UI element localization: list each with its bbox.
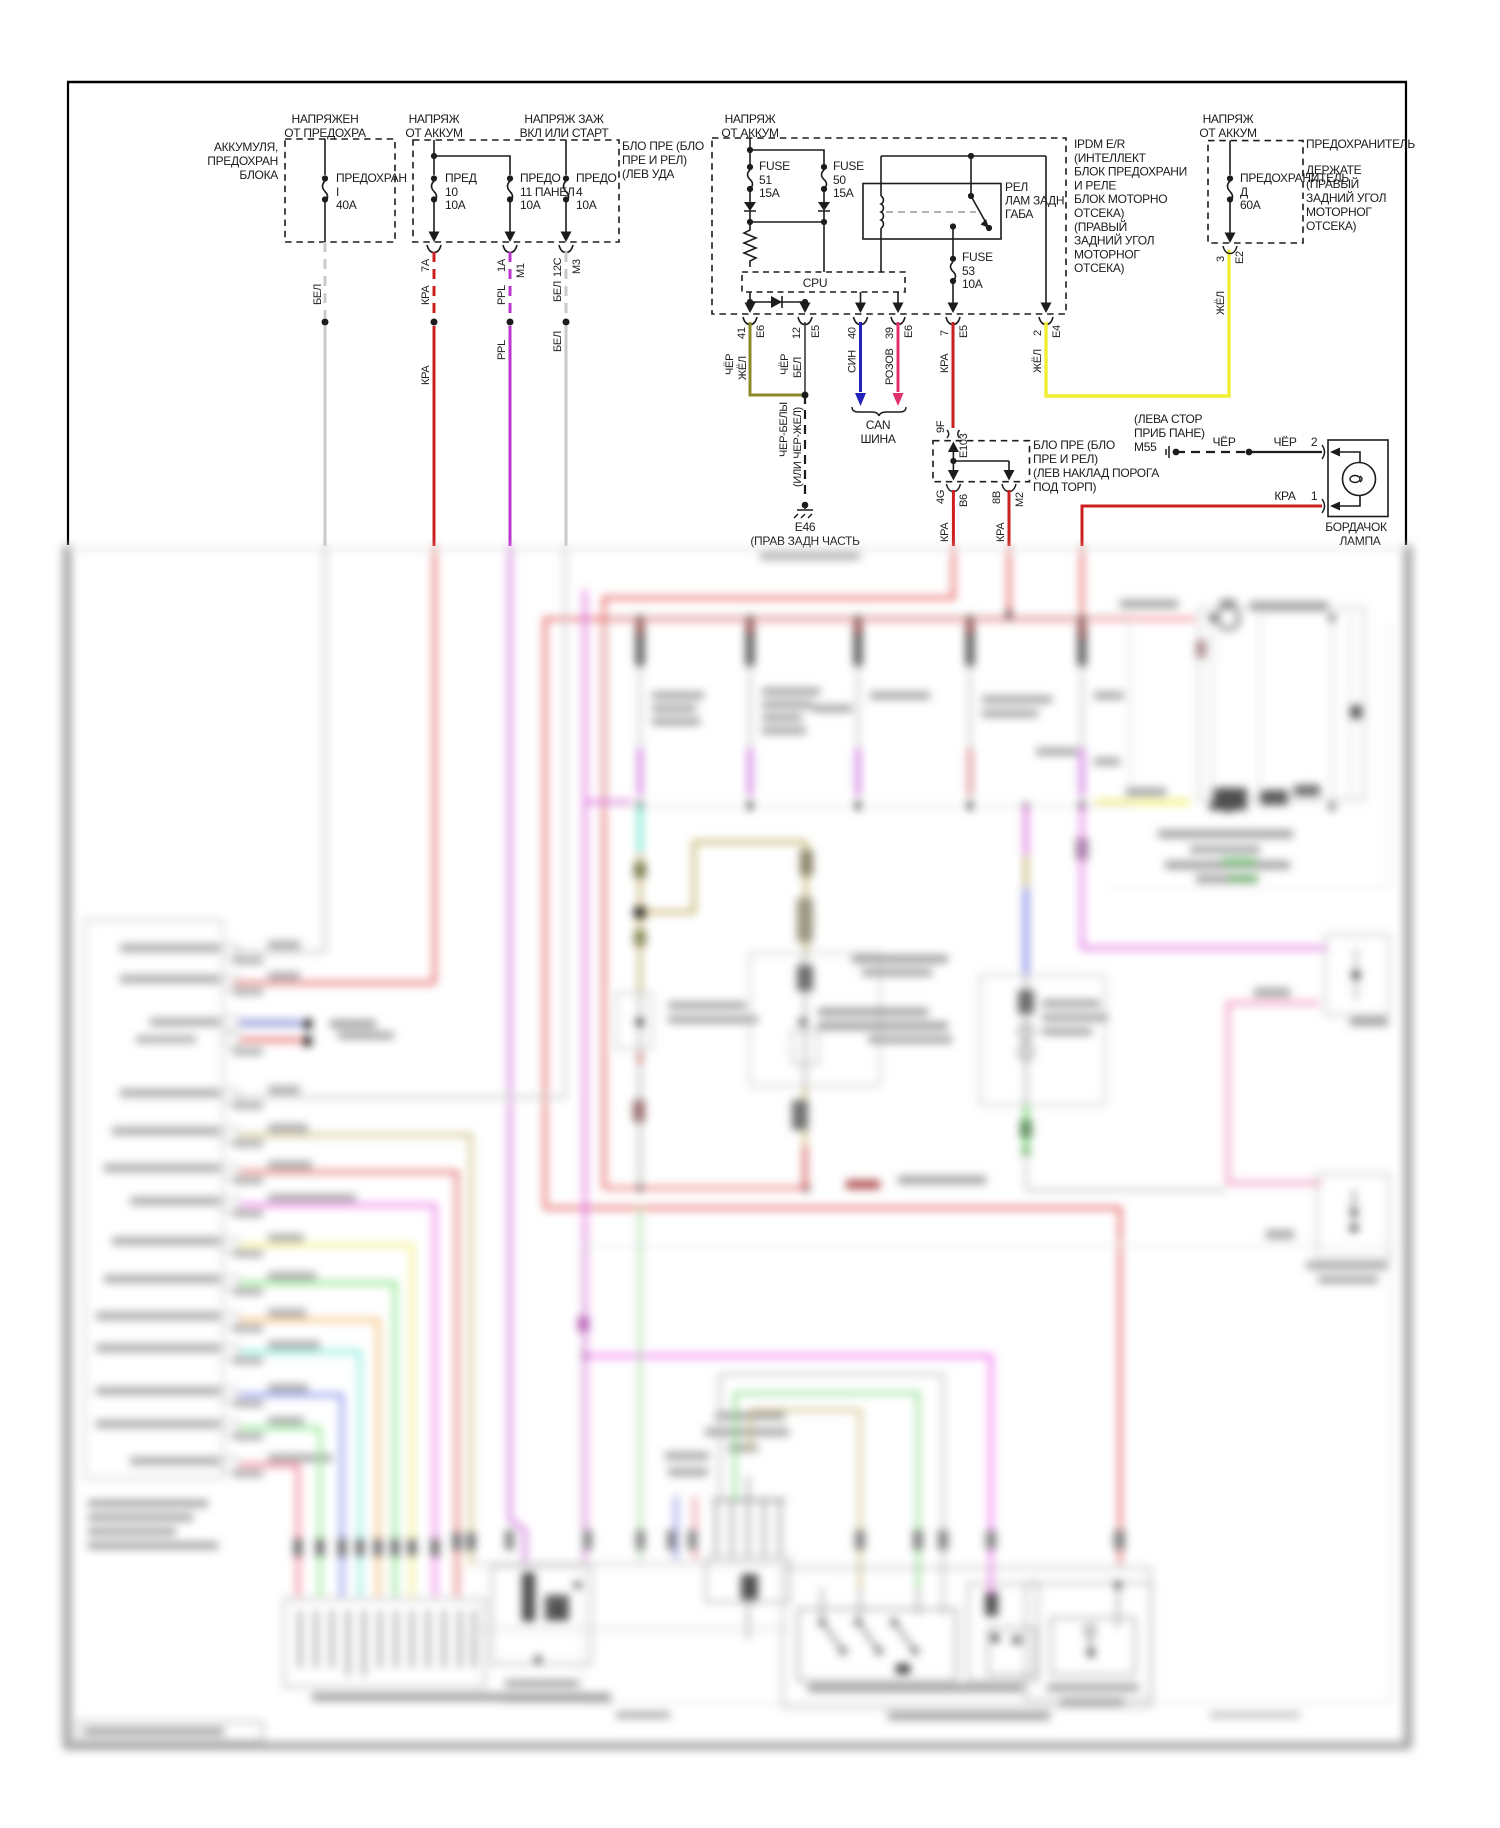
svg-text:ПРЕДОХРАНИТЕЛЬ: ПРЕДОХРАНИТЕЛЬ [1240, 171, 1349, 185]
svg-text:ПРЕДО: ПРЕДО [520, 171, 561, 185]
svg-text:ЛАМ ЗАДН: ЛАМ ЗАДН [1005, 194, 1064, 208]
svg-text:ЧЁР: ЧЁР [779, 354, 791, 375]
svg-text:(ЛЕВ УДА: (ЛЕВ УДА [622, 167, 674, 181]
svg-text:РОЗОВ: РОЗОВ [884, 348, 896, 385]
svg-text:53: 53 [962, 264, 975, 278]
svg-text:PPL: PPL [496, 285, 508, 305]
svg-text:Д: Д [1240, 185, 1248, 199]
svg-text:ЖЁЛ: ЖЁЛ [1215, 291, 1227, 315]
svg-text:БЕЛ: БЕЛ [552, 281, 564, 302]
svg-text:I: I [336, 185, 339, 199]
svg-text:ПРЕДОХРАН: ПРЕДОХРАН [207, 154, 278, 168]
svg-text:60A: 60A [1240, 198, 1261, 212]
svg-text:2: 2 [1311, 435, 1318, 449]
svg-text:(ИЛИ ЧЕР-ЖЕЛ): (ИЛИ ЧЕР-ЖЕЛ) [792, 407, 804, 487]
svg-text:БЕЛ: БЕЛ [792, 357, 804, 378]
svg-text:ГАБА: ГАБА [1005, 207, 1033, 221]
svg-text:FUSE: FUSE [962, 250, 993, 264]
svg-text:7A: 7A [420, 258, 432, 272]
svg-text:9F: 9F [935, 420, 947, 433]
svg-text:E6: E6 [903, 325, 915, 338]
svg-text:E103: E103 [958, 433, 970, 458]
svg-text:40A: 40A [336, 198, 357, 212]
svg-text:CAN: CAN [866, 418, 890, 432]
svg-text:М55: М55 [1134, 440, 1157, 454]
svg-text:E5: E5 [810, 325, 822, 338]
svg-text:15A: 15A [833, 186, 854, 200]
svg-text:ПРЕДО: ПРЕДО [576, 171, 617, 185]
svg-text:БЕЛ: БЕЛ [552, 331, 564, 352]
svg-text:ЖЁЛ: ЖЁЛ [1032, 349, 1044, 373]
svg-text:4G: 4G [935, 490, 947, 504]
svg-text:ОТ АККУМ: ОТ АККУМ [405, 126, 463, 140]
svg-text:БЛОК ПРЕДОХРАНИ: БЛОК ПРЕДОХРАНИ [1074, 165, 1187, 179]
svg-text:ЗАДНИЙ УГОЛ: ЗАДНИЙ УГОЛ [1074, 233, 1154, 248]
svg-text:ОТСЕКА): ОТСЕКА) [1074, 206, 1125, 220]
svg-text:FUSE: FUSE [833, 159, 864, 173]
svg-text:И РЕЛЕ: И РЕЛЕ [1074, 178, 1116, 192]
svg-text:4: 4 [576, 185, 583, 199]
svg-text:ПРЕДОХРАН: ПРЕДОХРАН [336, 171, 407, 185]
svg-text:КРА: КРА [939, 353, 951, 373]
svg-text:E6: E6 [755, 325, 767, 338]
svg-text:ОТСЕКА): ОТСЕКА) [1306, 219, 1357, 233]
svg-text:НАПРЯЖ: НАПРЯЖ [1203, 112, 1254, 126]
svg-text:КРА: КРА [420, 365, 432, 385]
svg-text:E4: E4 [1051, 325, 1063, 338]
svg-text:МОТОРНОГ: МОТОРНОГ [1306, 205, 1372, 219]
svg-text:39: 39 [884, 327, 896, 339]
svg-text:PPL: PPL [496, 340, 508, 360]
svg-text:ЗАДНИЙ УГОЛ: ЗАДНИЙ УГОЛ [1306, 190, 1386, 205]
svg-text:10A: 10A [576, 198, 597, 212]
svg-text:БОРДАЧОК: БОРДАЧОК [1325, 520, 1387, 534]
svg-text:(ИНТЕЛЛЕКТ: (ИНТЕЛЛЕКТ [1074, 151, 1147, 165]
svg-text:E2: E2 [1234, 251, 1246, 264]
svg-text:НАПРЯЖ ЗАЖ: НАПРЯЖ ЗАЖ [524, 112, 604, 126]
svg-text:ЛАМПА: ЛАМПА [1339, 534, 1380, 548]
svg-text:8B: 8B [991, 491, 1003, 504]
svg-text:ОТ АККУМ: ОТ АККУМ [1199, 126, 1257, 140]
svg-text:(ПРАВЫЙ: (ПРАВЫЙ [1074, 219, 1127, 234]
svg-text:НАПРЯЖ: НАПРЯЖ [725, 112, 776, 126]
svg-text:ЧЁР: ЧЁР [724, 354, 736, 375]
svg-text:ПРЕ И РЕЛ): ПРЕ И РЕЛ) [1033, 452, 1098, 466]
svg-text:10: 10 [445, 185, 458, 199]
svg-text:CPU: CPU [803, 276, 827, 290]
svg-text:51: 51 [759, 173, 772, 187]
svg-text:ЧЁР: ЧЁР [1212, 435, 1235, 449]
svg-text:M3: M3 [571, 259, 583, 274]
svg-text:КРА: КРА [995, 522, 1007, 542]
svg-text:ПРИБ ПАНЕ): ПРИБ ПАНЕ) [1134, 426, 1205, 440]
svg-text:БЛО ПРЕ (БЛО: БЛО ПРЕ (БЛО [622, 139, 704, 153]
svg-text:АККУМУЛЯ,: АККУМУЛЯ, [214, 140, 278, 154]
svg-text:IPDM E/R: IPDM E/R [1074, 137, 1126, 151]
svg-text:(ЛЕВ НАКЛАД ПОРОГА: (ЛЕВ НАКЛАД ПОРОГА [1033, 466, 1159, 480]
svg-text:БЕЛ: БЕЛ [312, 284, 324, 305]
svg-text:БЛО ПРЕ (БЛО: БЛО ПРЕ (БЛО [1033, 438, 1115, 452]
svg-text:10A: 10A [445, 198, 466, 212]
svg-text:E5: E5 [958, 325, 970, 338]
svg-text:15A: 15A [759, 186, 780, 200]
svg-text:1: 1 [1311, 489, 1318, 503]
svg-text:РЕЛ: РЕЛ [1005, 180, 1028, 194]
svg-text:2: 2 [1032, 330, 1044, 336]
svg-text:3: 3 [1215, 256, 1227, 262]
svg-text:12: 12 [791, 327, 803, 339]
svg-text:ШИНА: ШИНА [860, 432, 895, 446]
svg-text:FUSE: FUSE [759, 159, 790, 173]
svg-text:M2: M2 [1014, 492, 1026, 507]
svg-text:ПОД ТОРП): ПОД ТОРП) [1033, 480, 1097, 494]
svg-text:40: 40 [847, 327, 859, 339]
svg-text:ЖЁЛ: ЖЁЛ [737, 356, 749, 380]
svg-text:ОТ ПРЕДОХРА: ОТ ПРЕДОХРА [284, 126, 366, 140]
svg-text:B6: B6 [958, 494, 970, 507]
svg-text:ПРЕД: ПРЕД [445, 171, 477, 185]
svg-text:11 ПАНЕЛ: 11 ПАНЕЛ [520, 185, 575, 199]
svg-text:12C: 12C [552, 257, 564, 277]
svg-text:НАПРЯЖ: НАПРЯЖ [409, 112, 460, 126]
svg-text:50: 50 [833, 173, 846, 187]
svg-text:НАПРЯЖЕН: НАПРЯЖЕН [292, 112, 359, 126]
svg-text:КРА: КРА [939, 522, 951, 542]
svg-text:10A: 10A [962, 277, 983, 291]
svg-text:ЧЁР: ЧЁР [1273, 435, 1296, 449]
svg-text:1A: 1A [496, 258, 508, 272]
svg-text:E46: E46 [795, 520, 816, 534]
svg-text:ПРЕДОХРАНИТЕЛЬ: ПРЕДОХРАНИТЕЛЬ [1306, 137, 1415, 151]
svg-text:10A: 10A [520, 198, 541, 212]
svg-text:ПРЕ И РЕЛ): ПРЕ И РЕЛ) [622, 153, 687, 167]
svg-text:КРА: КРА [420, 285, 432, 305]
svg-text:СИН: СИН [847, 350, 859, 373]
svg-text:КРА: КРА [1274, 489, 1296, 503]
svg-text:БЛОКА: БЛОКА [239, 168, 278, 182]
svg-text:ОТСЕКА): ОТСЕКА) [1074, 261, 1125, 275]
svg-text:7: 7 [939, 330, 951, 336]
svg-text:(ЛЕВА СТОР: (ЛЕВА СТОР [1134, 412, 1203, 426]
svg-text:41: 41 [736, 327, 748, 339]
svg-text:БЛОК МОТОРНО: БЛОК МОТОРНО [1074, 192, 1167, 206]
svg-text:(ПРАВ ЗАДН ЧАСТЬ: (ПРАВ ЗАДН ЧАСТЬ [750, 534, 860, 548]
svg-text:МОТОРНОГ: МОТОРНОГ [1074, 247, 1140, 261]
svg-text:ВКЛ ИЛИ СТАРТ: ВКЛ ИЛИ СТАРТ [520, 126, 610, 140]
svg-text:ЧЕР-БЕЛЫ: ЧЕР-БЕЛЫ [778, 402, 790, 457]
svg-text:M1: M1 [515, 263, 527, 278]
